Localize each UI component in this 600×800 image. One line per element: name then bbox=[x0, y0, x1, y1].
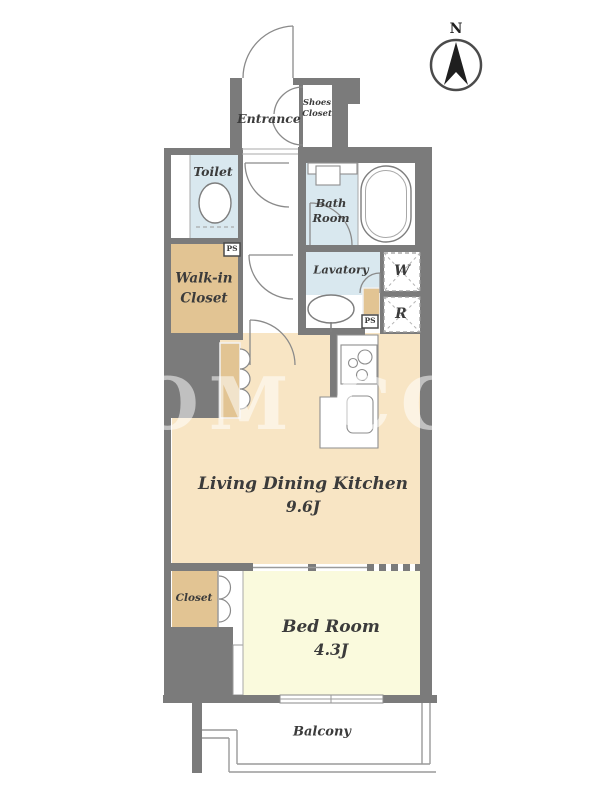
north-label: N bbox=[450, 20, 463, 38]
kitchen-partition bbox=[330, 335, 337, 402]
toilet-side-strip bbox=[171, 155, 190, 238]
bed-room-label: Bed Room bbox=[282, 616, 380, 638]
bath-counter-sink bbox=[316, 166, 340, 185]
lavatory-label: Lavatory bbox=[313, 263, 368, 278]
toilet-fixture bbox=[199, 183, 231, 223]
bath-room-label: Bath Room bbox=[312, 196, 349, 226]
balcony-label: Balcony bbox=[293, 725, 351, 742]
shoes-closet-label: Shoes Closet bbox=[302, 98, 332, 120]
refrigerator-label: R bbox=[395, 305, 407, 323]
bathtub bbox=[361, 166, 411, 242]
pillar-notch bbox=[233, 645, 243, 695]
stove-burner-2 bbox=[349, 359, 358, 368]
balcony-pillar bbox=[192, 703, 202, 773]
walk-in-closet-label: Walk-in Closet bbox=[175, 269, 232, 308]
counter-block bbox=[363, 288, 380, 315]
lavatory-sink bbox=[308, 295, 354, 323]
stove-burner-3 bbox=[357, 370, 368, 381]
ldk-closet-folding-doors bbox=[240, 349, 250, 409]
north-compass-icon bbox=[431, 40, 481, 90]
entrance-door-arc bbox=[243, 26, 293, 78]
ps-label-2: PS bbox=[364, 316, 375, 326]
pillar bbox=[164, 627, 233, 703]
ps-label-1: PS bbox=[226, 244, 237, 254]
ldk-size-label: 9.6J bbox=[286, 497, 320, 517]
storage-block bbox=[164, 340, 220, 418]
bed-room-size-label: 4.3J bbox=[314, 640, 348, 660]
kitchen-sink bbox=[347, 396, 373, 433]
stove-burner-1 bbox=[358, 350, 372, 364]
bedroom-window bbox=[280, 695, 383, 703]
entrance-label: Entrance bbox=[237, 111, 301, 127]
ldk-label: Living Dining Kitchen bbox=[198, 473, 408, 495]
toilet-label: Toilet bbox=[193, 164, 232, 180]
closet-label: Closet bbox=[176, 592, 213, 606]
ldk-closet-strip bbox=[220, 343, 240, 418]
floor-plan: Entrance Shoes Closet Toilet Bath Room L… bbox=[0, 0, 600, 800]
washer-label: W bbox=[394, 262, 410, 280]
